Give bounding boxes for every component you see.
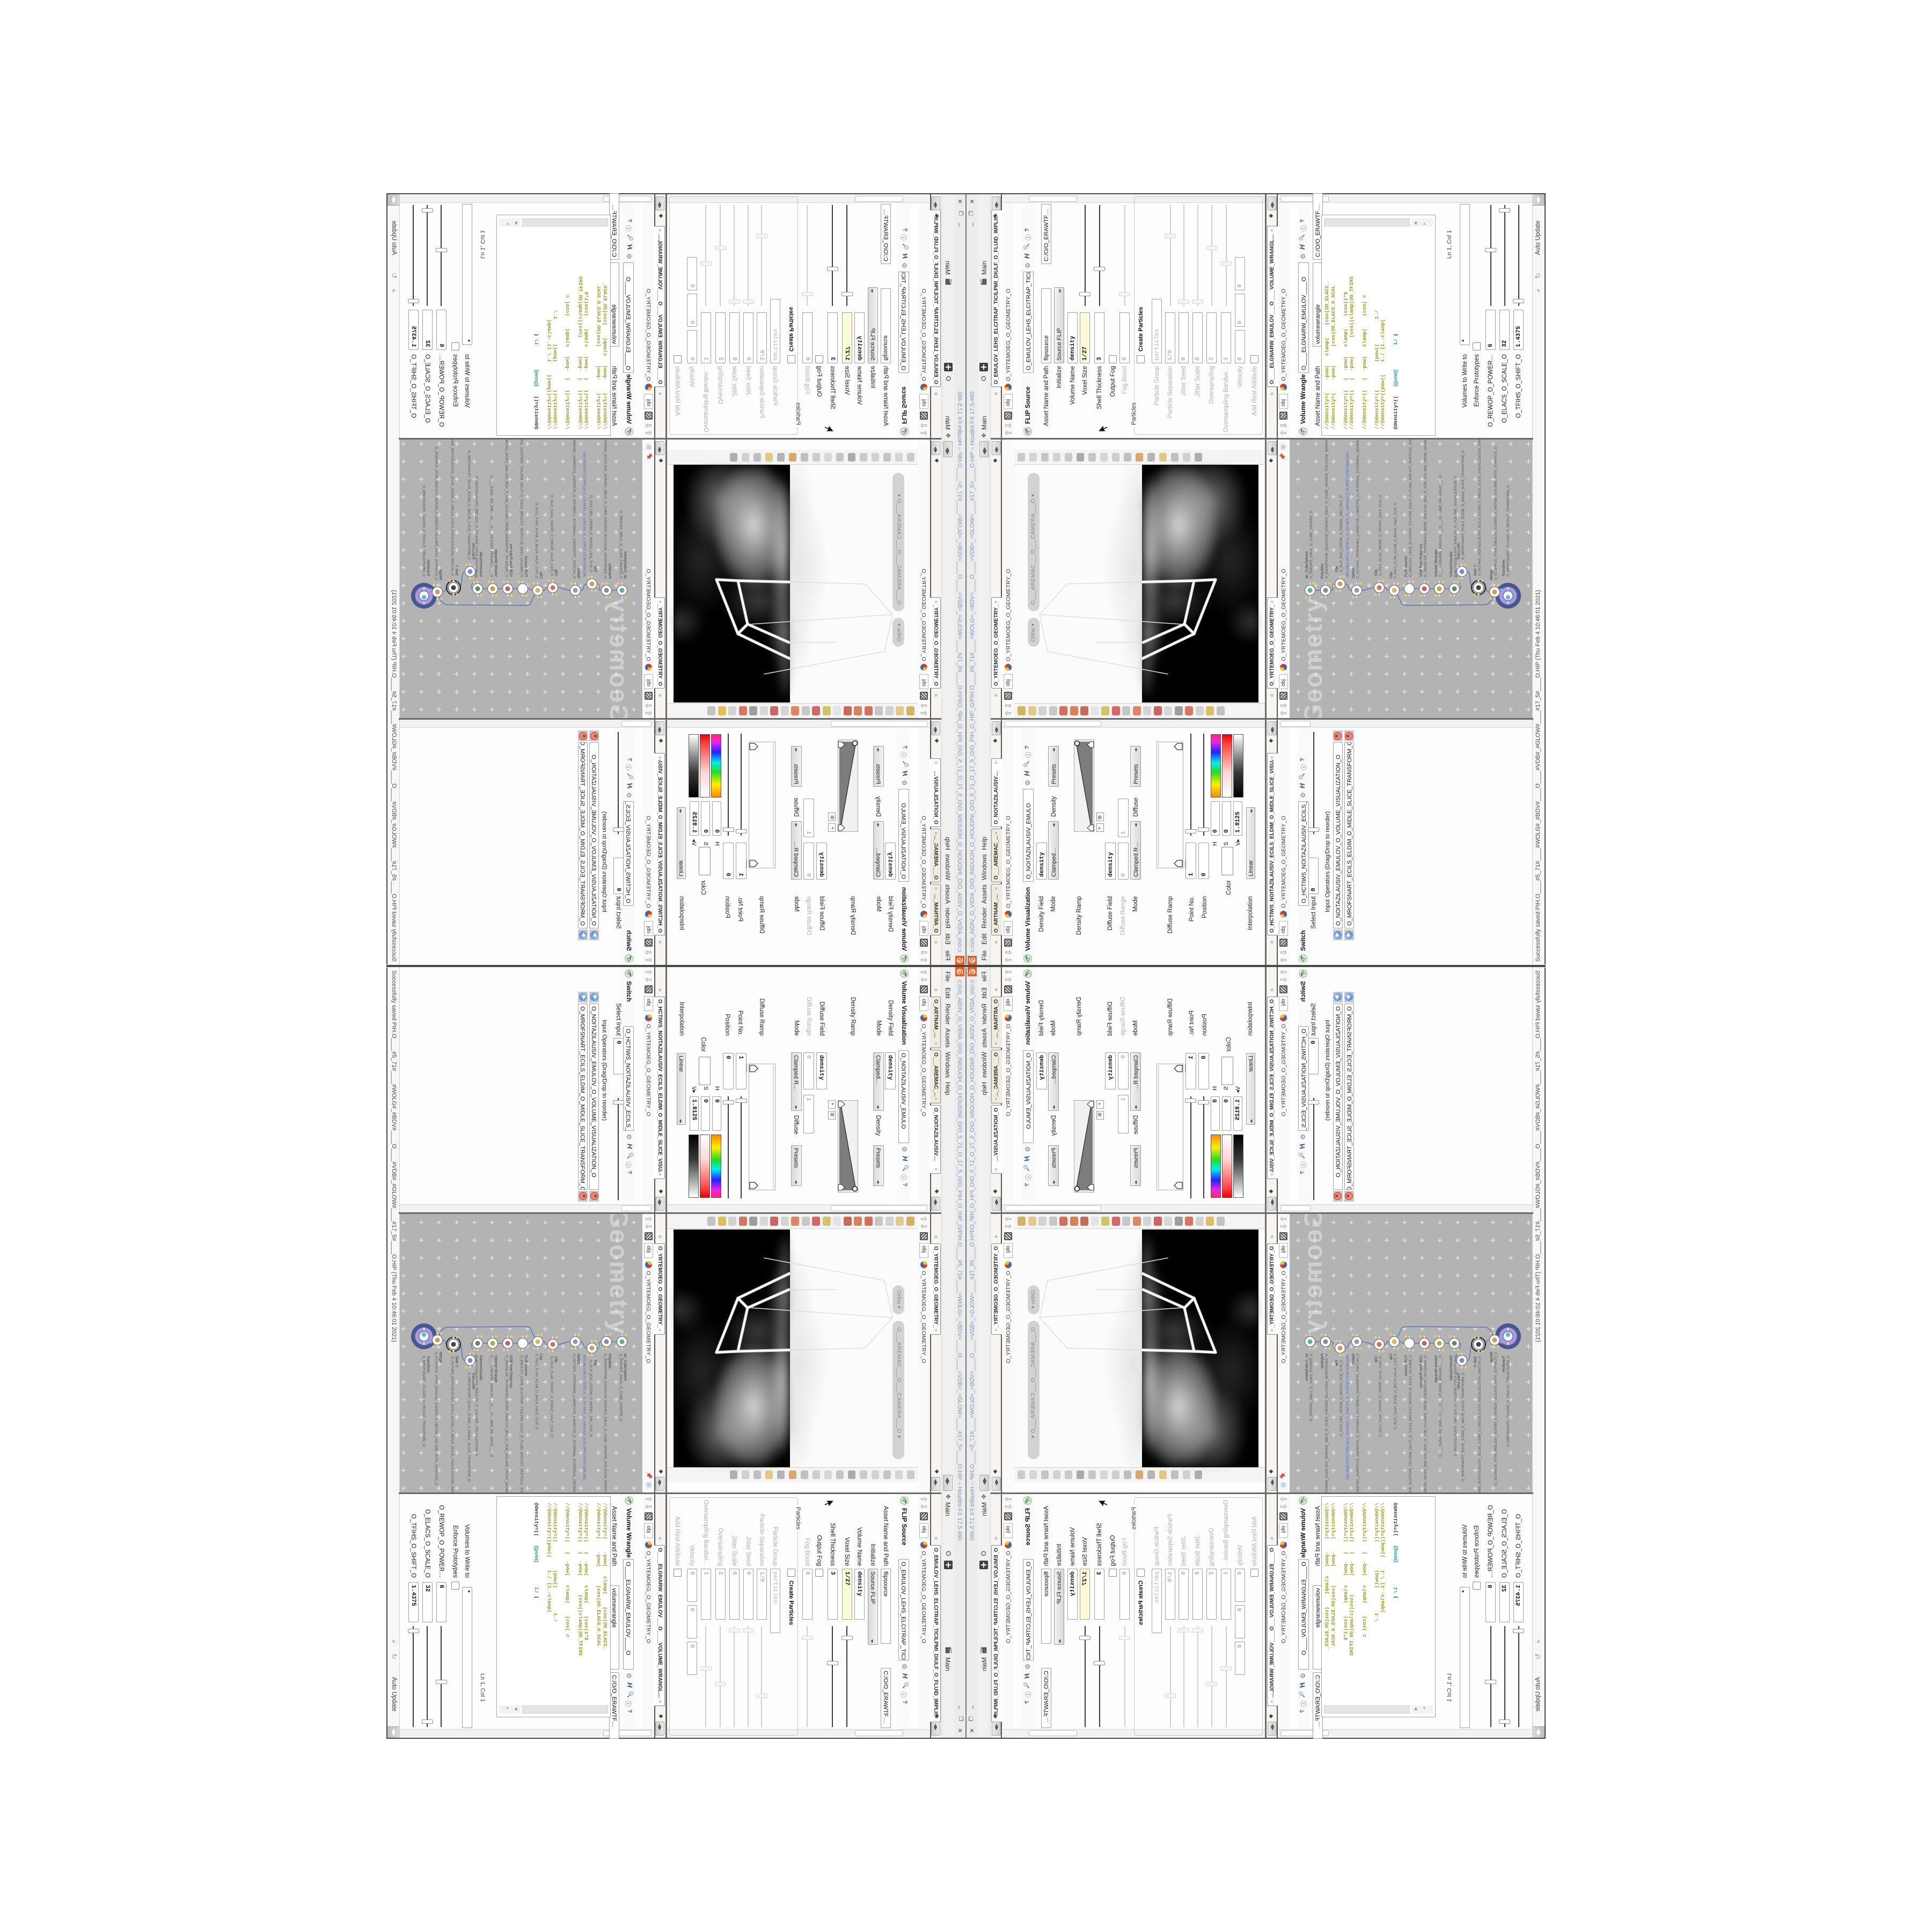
svg-text:O_MROFSNART_ECILS_ELDIM_O_MIDL: O_MROFSNART_ECILS_ELDIM_O_MIDLE_SLICE_TR… bbox=[1461, 450, 1465, 560]
svg-text:Switch: Switch bbox=[576, 567, 580, 579]
svg-text:Clip: Clip bbox=[1389, 572, 1393, 579]
svg-text:O_HCTIWS_NOITAZILAUSIV_ECILS_E: O_HCTIWS_NOITAZILAUSIV_ECILS_ELDIM_O_MID… bbox=[450, 1356, 454, 1493]
svg-text:File: File bbox=[593, 1360, 597, 1366]
svg-text:O_EMULOV_LEHS_ELCITRAP_TICILPM: O_EMULOV_LEHS_ELCITRAP_TICILPMI_DIULF_O_… bbox=[519, 439, 523, 577]
svg-text:Transform: Transform bbox=[1502, 1356, 1506, 1373]
svg-text:Volume Wrangle: Volume Wrangle bbox=[494, 1355, 497, 1382]
svg-text:O_ELIF_BJO_LEDOM_O_MODEL_OBJ_F: O_ELIF_BJO_LEDOM_O_MODEL_OBJ_FILE_O bbox=[1340, 1360, 1343, 1437]
svg-text:O_EMULOV_LEHS_ELCITRAP_TICILPM: O_EMULOV_LEHS_ELCITRAP_TICILPMI_DIULF_O_… bbox=[1409, 1355, 1413, 1493]
svg-text:O_ECAFRUS_HTIW_EMULOV_EGREM_O_: O_ECAFRUS_HTIW_EMULOV_EGREM_O_MERGE_VOLU… bbox=[1494, 1352, 1498, 1485]
svg-text:O_ELIF_BJO_LEDOM_O_MODEL_OBJ_F: O_ELIF_BJO_LEDOM_O_MODEL_OBJ_FILE_O bbox=[589, 1360, 592, 1437]
svg-text:O_NOITAZILAUSIV_EMULOV_O_VOLUM: O_NOITAZILAUSIV_EMULOV_O_VOLUME_VISUALIZ… bbox=[474, 476, 478, 577]
svg-text:Transform: Transform bbox=[426, 1356, 430, 1373]
svg-text:O_PILC_FLAH_KCAB_O_BACK_HALF_C: O_PILC_FLAH_KCAB_O_BACK_HALF_CLIP_O bbox=[1394, 1353, 1397, 1430]
svg-text:PolyWire: PolyWire bbox=[608, 1353, 611, 1368]
svg-text:Merge: Merge bbox=[1490, 1352, 1494, 1363]
svg-text:FLIP Source: FLIP Source bbox=[524, 556, 528, 577]
svg-text:Transform: Transform bbox=[1457, 1372, 1461, 1389]
svg-text:an_CubeSphere: an_CubeSphere bbox=[623, 551, 627, 579]
svg-text:an_CubeSphere: an_CubeSphere bbox=[1305, 551, 1309, 579]
svg-text:Clip: Clip bbox=[554, 569, 558, 576]
svg-text:JBO.MD3,PETS.TEPDLS_O_XO.NEG_O: JBO.MD3,PETS.TEPDLS_O_XO.NEG_O_GENUS3_D.… bbox=[1346, 452, 1350, 577]
svg-text:O_SNOGLOP_YRTEMOEG_MORF_EMULOV: O_SNOGLOP_YRTEMOEG_MORF_EMULOV_BDV_O_VDB… bbox=[504, 1355, 508, 1493]
svg-text:JBO.MD3,PETS.TEPDLS_O_XO.NEG_O: JBO.MD3,PETS.TEPDLS_O_XO.NEG_O_GENUS3_D.… bbox=[582, 452, 586, 577]
svg-text:O_EREHPS_EBUC_O_CUBE_SPHERE_O: O_EREHPS_EBUC_O_CUBE_SPHERE_O bbox=[619, 1353, 623, 1421]
svg-text:O_MROFSNART_TLUSER_O_RESULT_TR: O_MROFSNART_TLUSER_O_RESULT_TRANSFORM_O bbox=[422, 485, 426, 576]
svg-text:Transform: Transform bbox=[1457, 543, 1461, 560]
svg-text:O_EREHPS_EBUC_O_CUBE_SPHERE_O: O_EREHPS_EBUC_O_CUBE_SPHERE_O bbox=[619, 511, 623, 579]
svg-text:O_SNOGLOP_YRTEMOEG_MORF_EMULOV: O_SNOGLOP_YRTEMOEG_MORF_EMULOV_BDV_O_VDB… bbox=[1424, 439, 1428, 577]
svg-text:O___ELGNARW_EMULOV___O___VOLUM: O___ELGNARW_EMULOV___O___VOLUME_WRANGLE_… bbox=[1439, 1355, 1443, 1457]
svg-text:Merge: Merge bbox=[438, 569, 442, 580]
svg-text:Volume Wrangle: Volume Wrangle bbox=[1435, 1355, 1438, 1382]
svg-text:Transform: Transform bbox=[426, 559, 430, 576]
svg-text:O_NOITAZILAUSIV_EMULOV_O_VOLUM: O_NOITAZILAUSIV_EMULOV_O_VOLUME_VISUALIZ… bbox=[1454, 476, 1458, 577]
svg-text:O_HCTIWS_NOITAZILAUSIV_ECILS_E: O_HCTIWS_NOITAZILAUSIV_ECILS_ELDIM_O_MID… bbox=[1478, 439, 1482, 576]
svg-text:Switch: Switch bbox=[455, 565, 458, 576]
svg-text:O_HCTIWS_YRTEMOEG_LANRETXE_LAN: O_HCTIWS_YRTEMOEG_LANRETXE_LANRETNI_O_IN… bbox=[1356, 439, 1360, 579]
svg-text:O_PILC_FLAH_TNORF_O_FRONT_HALF: O_PILC_FLAH_TNORF_O_FRONT_HALF_CLIP_O bbox=[550, 1356, 553, 1437]
svg-text:FLIP Source: FLIP Source bbox=[1404, 1355, 1408, 1376]
svg-text:O_EMULOV_LEHS_ELCITRAP_TICILPM: O_EMULOV_LEHS_ELCITRAP_TICILPMI_DIULF_O_… bbox=[1409, 439, 1413, 577]
svg-text:O_MROFSNART_ECILS_ELDIM_O_MIDL: O_MROFSNART_ECILS_ELDIM_O_MIDLE_SLICE_TR… bbox=[467, 450, 471, 560]
svg-text:Clip: Clip bbox=[539, 572, 543, 579]
svg-text:O_PILC_FLAH_TNORF_O_FRONT_HALF: O_PILC_FLAH_TNORF_O_FRONT_HALF_CLIP_O bbox=[550, 495, 553, 576]
svg-text:PolyWire: PolyWire bbox=[1321, 1353, 1324, 1368]
svg-text:Clip: Clip bbox=[1374, 1356, 1378, 1363]
svg-text:Volume Wrangle: Volume Wrangle bbox=[1435, 550, 1438, 577]
svg-text:JBO.MD3,PETS.TEPDLS_O_XO.NEG_O: JBO.MD3,PETS.TEPDLS_O_XO.NEG_O_GENUS3_D.… bbox=[582, 1355, 586, 1480]
svg-text:O_NOITAZILAUSIV_EMULOV_O_VOLUM: O_NOITAZILAUSIV_EMULOV_O_VOLUME_VISUALIZ… bbox=[1454, 1355, 1458, 1456]
svg-text:Clip: Clip bbox=[1374, 569, 1378, 576]
svg-text:File: File bbox=[1335, 1360, 1339, 1366]
svg-text:O_PILC_FLAH_KCAB_O_BACK_HALF_C: O_PILC_FLAH_KCAB_O_BACK_HALF_CLIP_O bbox=[535, 1353, 538, 1430]
svg-text:O_PILC_FLAH_TNORF_O_FRONT_HALF: O_PILC_FLAH_TNORF_O_FRONT_HALF_CLIP_O bbox=[1379, 495, 1382, 576]
svg-text:Switch: Switch bbox=[455, 1356, 458, 1367]
svg-text:O_EREHPS_EBUC_O_CUBE_SPHERE_O: O_EREHPS_EBUC_O_CUBE_SPHERE_O bbox=[1309, 511, 1313, 579]
svg-text:PolyWire: PolyWire bbox=[1321, 563, 1324, 579]
svg-text:VolumeVisualiz: VolumeVisualiz bbox=[479, 551, 482, 577]
svg-text:Transform: Transform bbox=[471, 1372, 475, 1389]
svg-text:FLIP Source: FLIP Source bbox=[524, 1355, 528, 1376]
svg-text:O_EMARFERIW_NOGYLOP_EREHPS_EBU: O_EMARFERIW_NOGYLOP_EREHPS_EBUC_O_CUBE_S… bbox=[603, 439, 607, 579]
svg-text:O_NOITAZILAUSIV_EMULOV_O_VOLUM: O_NOITAZILAUSIV_EMULOV_O_VOLUME_VISUALIZ… bbox=[474, 1355, 478, 1456]
svg-text:File: File bbox=[1335, 566, 1339, 572]
svg-text:Switch: Switch bbox=[576, 1353, 580, 1365]
svg-text:O___ELGNARW_EMULOV___O___VOLUM: O___ELGNARW_EMULOV___O___VOLUME_WRANGLE_… bbox=[489, 475, 493, 577]
svg-text:O_ELIF_BJO_LEDOM_O_MODEL_OBJ_F: O_ELIF_BJO_LEDOM_O_MODEL_OBJ_FILE_O bbox=[589, 495, 592, 572]
svg-text:O_MROFSNART_ECILS_ELDIM_O_MIDL: O_MROFSNART_ECILS_ELDIM_O_MIDLE_SLICE_TR… bbox=[467, 1372, 471, 1482]
svg-text:File: File bbox=[593, 566, 597, 572]
svg-text:O_ECAFRUS_HTIW_EMULOV_EGREM_O_: O_ECAFRUS_HTIW_EMULOV_EGREM_O_MERGE_VOLU… bbox=[1494, 447, 1498, 580]
svg-text:O_HCTIWS_YRTEMOEG_LANRETXE_LAN: O_HCTIWS_YRTEMOEG_LANRETXE_LANRETNI_O_IN… bbox=[572, 1353, 576, 1493]
svg-text:VolumeVisualiz: VolumeVisualiz bbox=[479, 1355, 482, 1381]
svg-text:Switch: Switch bbox=[1352, 567, 1356, 579]
svg-text:O_EMARFERIW_NOGYLOP_EREHPS_EBU: O_EMARFERIW_NOGYLOP_EREHPS_EBUC_O_CUBE_S… bbox=[1325, 439, 1329, 579]
svg-text:Transform: Transform bbox=[471, 543, 475, 560]
svg-text:O_EMARFERIW_NOGYLOP_EREHPS_EBU: O_EMARFERIW_NOGYLOP_EREHPS_EBUC_O_CUBE_S… bbox=[603, 1353, 607, 1493]
svg-text:an_CubeSphere: an_CubeSphere bbox=[1305, 1353, 1309, 1381]
svg-text:O_HCTIWS_YRTEMOEG_LANRETXE_LAN: O_HCTIWS_YRTEMOEG_LANRETXE_LANRETNI_O_IN… bbox=[1356, 1353, 1360, 1493]
svg-text:O_EREHPS_EBUC_O_CUBE_SPHERE_O: O_EREHPS_EBUC_O_CUBE_SPHERE_O bbox=[1309, 1353, 1313, 1421]
svg-text:O___ELGNARW_EMULOV___O___VOLUM: O___ELGNARW_EMULOV___O___VOLUME_WRANGLE_… bbox=[489, 1355, 493, 1457]
svg-text:Merge: Merge bbox=[438, 1352, 442, 1363]
svg-text:FLIP Source: FLIP Source bbox=[1404, 556, 1408, 577]
svg-text:VolumeVisualiz: VolumeVisualiz bbox=[1450, 551, 1453, 577]
svg-text:Clip: Clip bbox=[539, 1353, 543, 1360]
svg-text:O_ECAFRUS_HTIW_EMULOV_EGREM_O_: O_ECAFRUS_HTIW_EMULOV_EGREM_O_MERGE_VOLU… bbox=[434, 1352, 438, 1485]
svg-text:O_PILC_FLAH_KCAB_O_BACK_HALF_C: O_PILC_FLAH_KCAB_O_BACK_HALF_CLIP_O bbox=[1394, 502, 1397, 579]
svg-text:O_MROFSNART_TLUSER_O_RESULT_TR: O_MROFSNART_TLUSER_O_RESULT_TRANSFORM_O bbox=[1506, 1356, 1510, 1447]
svg-text:VDB from Polygons: VDB from Polygons bbox=[509, 544, 513, 577]
svg-text:PolyWire: PolyWire bbox=[608, 563, 611, 579]
svg-text:O_HCTIWS_NOITAZILAUSIV_ECILS_E: O_HCTIWS_NOITAZILAUSIV_ECILS_ELDIM_O_MID… bbox=[450, 439, 454, 576]
svg-text:JBO.MD3,PETS.TEPDLS_O_XO.NEG_O: JBO.MD3,PETS.TEPDLS_O_XO.NEG_O_GENUS3_D.… bbox=[1346, 1355, 1350, 1480]
svg-text:Merge: Merge bbox=[1490, 569, 1494, 580]
svg-text:Transform: Transform bbox=[1502, 559, 1506, 576]
svg-text:Switch: Switch bbox=[1352, 1353, 1356, 1365]
svg-text:Switch: Switch bbox=[1474, 565, 1477, 576]
svg-text:O_EMULOV_LEHS_ELCITRAP_TICILPM: O_EMULOV_LEHS_ELCITRAP_TICILPMI_DIULF_O_… bbox=[519, 1355, 523, 1493]
svg-text:O___ELGNARW_EMULOV___O___VOLUM: O___ELGNARW_EMULOV___O___VOLUME_WRANGLE_… bbox=[1439, 475, 1443, 577]
svg-text:O_PILC_FLAH_KCAB_O_BACK_HALF_C: O_PILC_FLAH_KCAB_O_BACK_HALF_CLIP_O bbox=[535, 502, 538, 579]
svg-text:VolumeVisualiz: VolumeVisualiz bbox=[1450, 1355, 1453, 1381]
svg-text:VDB from Polygons: VDB from Polygons bbox=[1419, 544, 1423, 577]
svg-text:O_SNOGLOP_YRTEMOEG_MORF_EMULOV: O_SNOGLOP_YRTEMOEG_MORF_EMULOV_BDV_O_VDB… bbox=[1424, 1355, 1428, 1493]
svg-text:Volume Wrangle: Volume Wrangle bbox=[494, 550, 497, 577]
svg-text:O_MROFSNART_TLUSER_O_RESULT_TR: O_MROFSNART_TLUSER_O_RESULT_TRANSFORM_O bbox=[1506, 485, 1510, 576]
svg-text:O_HCTIWS_YRTEMOEG_LANRETXE_LAN: O_HCTIWS_YRTEMOEG_LANRETXE_LANRETNI_O_IN… bbox=[572, 439, 576, 579]
svg-text:O_MROFSNART_ECILS_ELDIM_O_MIDL: O_MROFSNART_ECILS_ELDIM_O_MIDLE_SLICE_TR… bbox=[1461, 1372, 1465, 1482]
svg-text:O_MROFSNART_TLUSER_O_RESULT_TR: O_MROFSNART_TLUSER_O_RESULT_TRANSFORM_O bbox=[422, 1356, 426, 1447]
svg-text:O_ECAFRUS_HTIW_EMULOV_EGREM_O_: O_ECAFRUS_HTIW_EMULOV_EGREM_O_MERGE_VOLU… bbox=[434, 447, 438, 580]
svg-text:O_PILC_FLAH_TNORF_O_FRONT_HALF: O_PILC_FLAH_TNORF_O_FRONT_HALF_CLIP_O bbox=[1379, 1356, 1382, 1437]
svg-text:Switch: Switch bbox=[1474, 1356, 1477, 1367]
svg-text:Clip: Clip bbox=[554, 1356, 558, 1363]
svg-text:an_CubeSphere: an_CubeSphere bbox=[623, 1353, 627, 1381]
svg-text:O_HCTIWS_NOITAZILAUSIV_ECILS_E: O_HCTIWS_NOITAZILAUSIV_ECILS_ELDIM_O_MID… bbox=[1478, 1356, 1482, 1493]
svg-text:VDB from Polygons: VDB from Polygons bbox=[1419, 1355, 1423, 1388]
svg-text:Clip: Clip bbox=[1389, 1353, 1393, 1360]
svg-text:VDB from Polygons: VDB from Polygons bbox=[509, 1355, 513, 1388]
svg-text:O_SNOGLOP_YRTEMOEG_MORF_EMULOV: O_SNOGLOP_YRTEMOEG_MORF_EMULOV_BDV_O_VDB… bbox=[504, 439, 508, 577]
svg-text:O_EMARFERIW_NOGYLOP_EREHPS_EBU: O_EMARFERIW_NOGYLOP_EREHPS_EBUC_O_CUBE_S… bbox=[1325, 1353, 1329, 1493]
svg-text:O_ELIF_BJO_LEDOM_O_MODEL_OBJ_F: O_ELIF_BJO_LEDOM_O_MODEL_OBJ_FILE_O bbox=[1340, 495, 1343, 572]
